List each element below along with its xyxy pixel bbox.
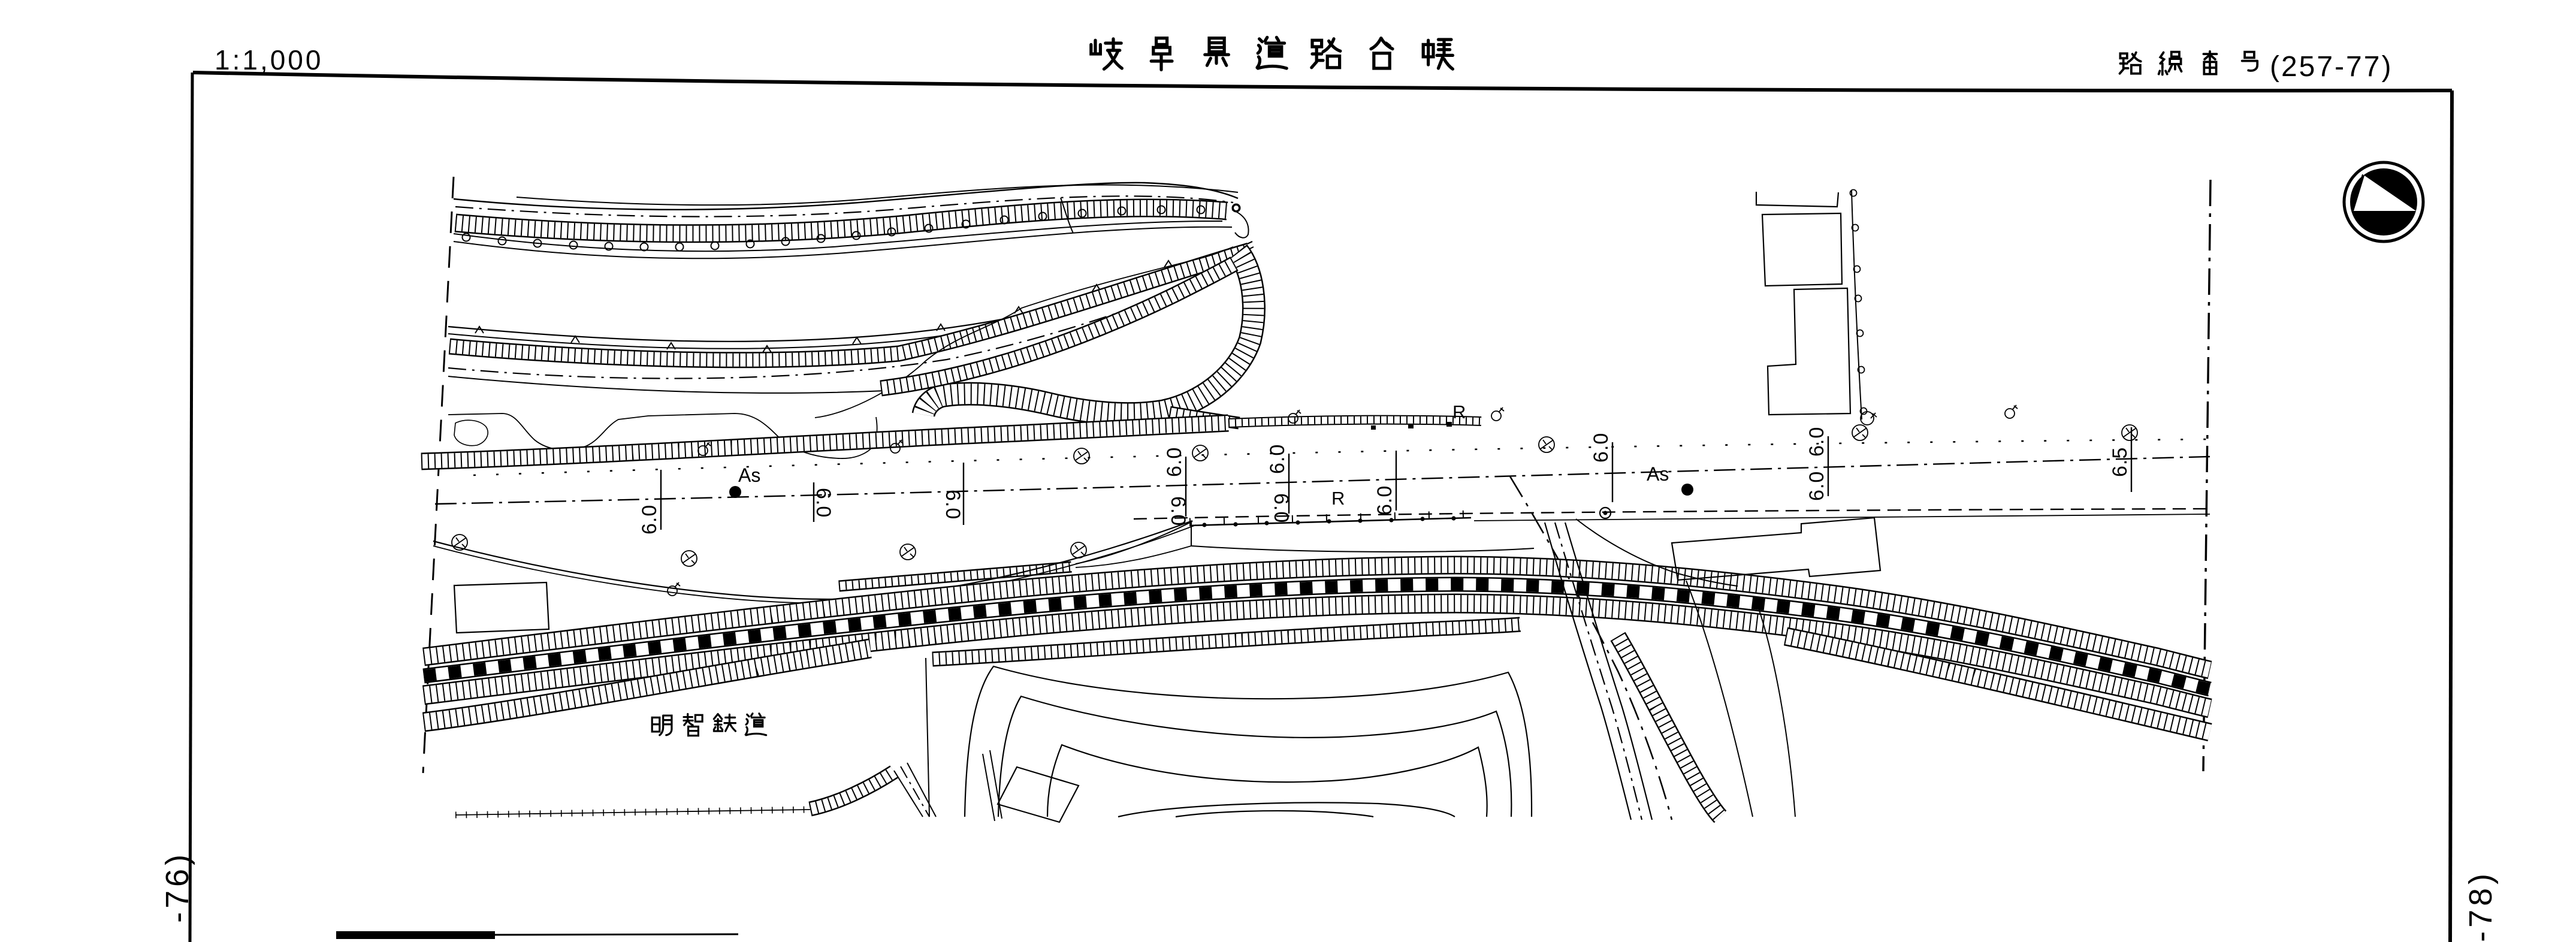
svg-text:6.5: 6.5 — [2109, 447, 2131, 477]
svg-text:1:1,000: 1:1,000 — [215, 44, 323, 76]
svg-text:6.0: 6.0 — [1266, 444, 1289, 474]
svg-text:6.0: 6.0 — [1805, 471, 1828, 501]
svg-text:-76): -76) — [159, 851, 195, 923]
svg-text:6.0: 6.0 — [1373, 485, 1396, 515]
svg-text:R: R — [1331, 488, 1345, 509]
svg-text:6.0: 6.0 — [812, 488, 835, 518]
svg-text:6.0: 6.0 — [1163, 447, 1186, 477]
svg-text:6.0: 6.0 — [1270, 493, 1292, 523]
svg-text:6.0: 6.0 — [1590, 433, 1612, 463]
svg-text:6.0: 6.0 — [1167, 496, 1189, 526]
svg-text:As: As — [738, 464, 760, 486]
svg-text:As: As — [1647, 463, 1669, 485]
svg-text:-78): -78) — [2463, 870, 2499, 942]
svg-text:R: R — [1452, 401, 1466, 422]
svg-text:6.0: 6.0 — [1805, 427, 1828, 457]
svg-text:(257-77): (257-77) — [2270, 51, 2393, 83]
svg-text:6.0: 6.0 — [941, 490, 964, 520]
svg-text:6.0: 6.0 — [638, 505, 661, 535]
